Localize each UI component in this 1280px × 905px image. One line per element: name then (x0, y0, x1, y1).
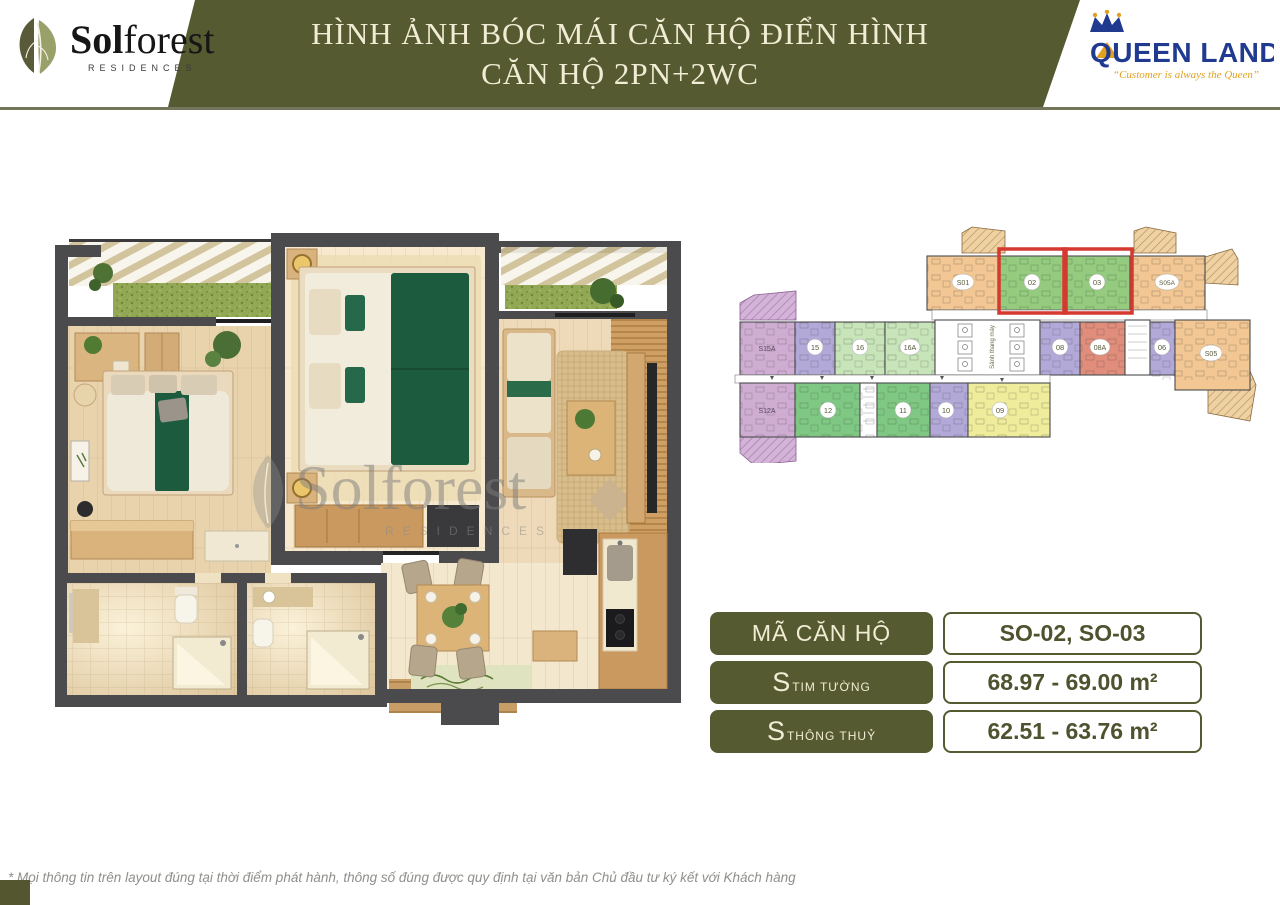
table-row: STIM TƯỜNG 68.97 - 69.00 m² (710, 661, 1202, 704)
bathroom-1 (67, 583, 237, 695)
tv-console (627, 353, 645, 523)
unit-label-S01: S01 (957, 280, 970, 287)
title-banner: HÌNH ẢNH BÓC MÁI CĂN HỘ ĐIỂN HÌNH CĂN HỘ… (150, 0, 1090, 107)
bed-2 (299, 267, 475, 471)
row-label-net-area: STHÔNG THUỶ (710, 710, 933, 753)
solforest-leaf-icon (16, 16, 60, 76)
sink (607, 545, 633, 581)
solforest-wordmark: Solforest (70, 19, 214, 61)
elevator-core: Sảnh thang máy (958, 324, 1024, 371)
row-value-unit-code: SO-02, SO-03 (943, 612, 1202, 655)
floor-plate-diagram: Sảnh thang máy (710, 225, 1280, 463)
table-row: MÃ CĂN HỘ SO-02, SO-03 (710, 612, 1202, 655)
solforest-subtitle: RESIDENCES (88, 63, 197, 73)
toilet (175, 595, 197, 623)
row-label-gross-area: STIM TƯỜNG (710, 661, 933, 704)
fridge (563, 529, 597, 575)
page-title-line2: CĂN HỘ 2PN+2WC (481, 54, 759, 94)
unit-label-S15A: S15A (758, 346, 775, 353)
core-label: Sảnh thang máy (990, 325, 996, 369)
unit-label-08A: 08A (1094, 345, 1107, 352)
coffee-table (567, 401, 615, 475)
disclaimer-footnote: * Mọi thông tin trên layout đúng tại thờ… (8, 870, 796, 885)
crown-icon (1090, 10, 1124, 32)
stool (74, 384, 96, 406)
row-value-net-area: 62.51 - 63.76 m² (943, 710, 1202, 753)
unit-label-15: 15 (811, 343, 819, 352)
vanity (73, 589, 99, 643)
queenland-wordmark: QUEEN LAND (1090, 37, 1274, 68)
solforest-logo: Solforest RESIDENCES (16, 16, 214, 76)
corner-decoration (0, 880, 30, 905)
row-value-gross-area: 68.97 - 69.00 m² (943, 661, 1202, 704)
unit-label-16A: 16A (904, 345, 917, 352)
balcony-living (501, 247, 667, 309)
unit-label-S05A: S05A (1159, 280, 1176, 287)
page: HÌNH ẢNH BÓC MÁI CĂN HỘ ĐIỂN HÌNH CĂN HỘ… (0, 0, 1280, 905)
unit-label-12: 12 (824, 406, 832, 415)
bathrooms (55, 573, 387, 707)
tv-panel (647, 363, 657, 513)
table-row: STHÔNG THUỶ 62.51 - 63.76 m² (710, 710, 1202, 753)
unit-label-06: 06 (1158, 343, 1166, 352)
unit-label-S12A: S12A (758, 408, 775, 415)
page-title-line1: HÌNH ẢNH BÓC MÁI CĂN HỘ ĐIỂN HÌNH (311, 14, 929, 54)
floor-lamp (77, 501, 93, 517)
unit-label-16: 16 (856, 343, 864, 352)
vanity (253, 587, 313, 607)
unit-label-03: 03 (1093, 278, 1101, 287)
apartment-info-table: MÃ CĂN HỘ SO-02, SO-03 STIM TƯỜNG 68.97 … (710, 612, 1202, 759)
watermark-text: Solforest (295, 452, 526, 523)
apartment-3d-floorplan: Solforest RESIDENCES (55, 233, 690, 735)
row-label-unit-code: MÃ CĂN HỘ (710, 612, 933, 655)
unit-label-S05: S05 (1205, 351, 1218, 358)
queenland-logo: QUEEN LAND “Customer is always the Queen… (1082, 10, 1274, 91)
toilet (253, 619, 273, 647)
watermark-subtext: RESIDENCES (385, 524, 553, 538)
stairwell (1125, 320, 1150, 375)
queenland-tagline: “Customer is always the Queen” (1113, 69, 1259, 81)
unit-label-09: 09 (996, 406, 1004, 415)
unit-label-02: 02 (1028, 278, 1036, 287)
unit-label-11: 11 (899, 406, 907, 415)
unit-label-08: 08 (1056, 343, 1064, 352)
unit-label-10: 10 (942, 406, 950, 415)
step-bench (533, 631, 577, 661)
header-divider (0, 107, 1280, 110)
bathroom-2 (247, 583, 375, 695)
bed-1 (103, 371, 233, 495)
